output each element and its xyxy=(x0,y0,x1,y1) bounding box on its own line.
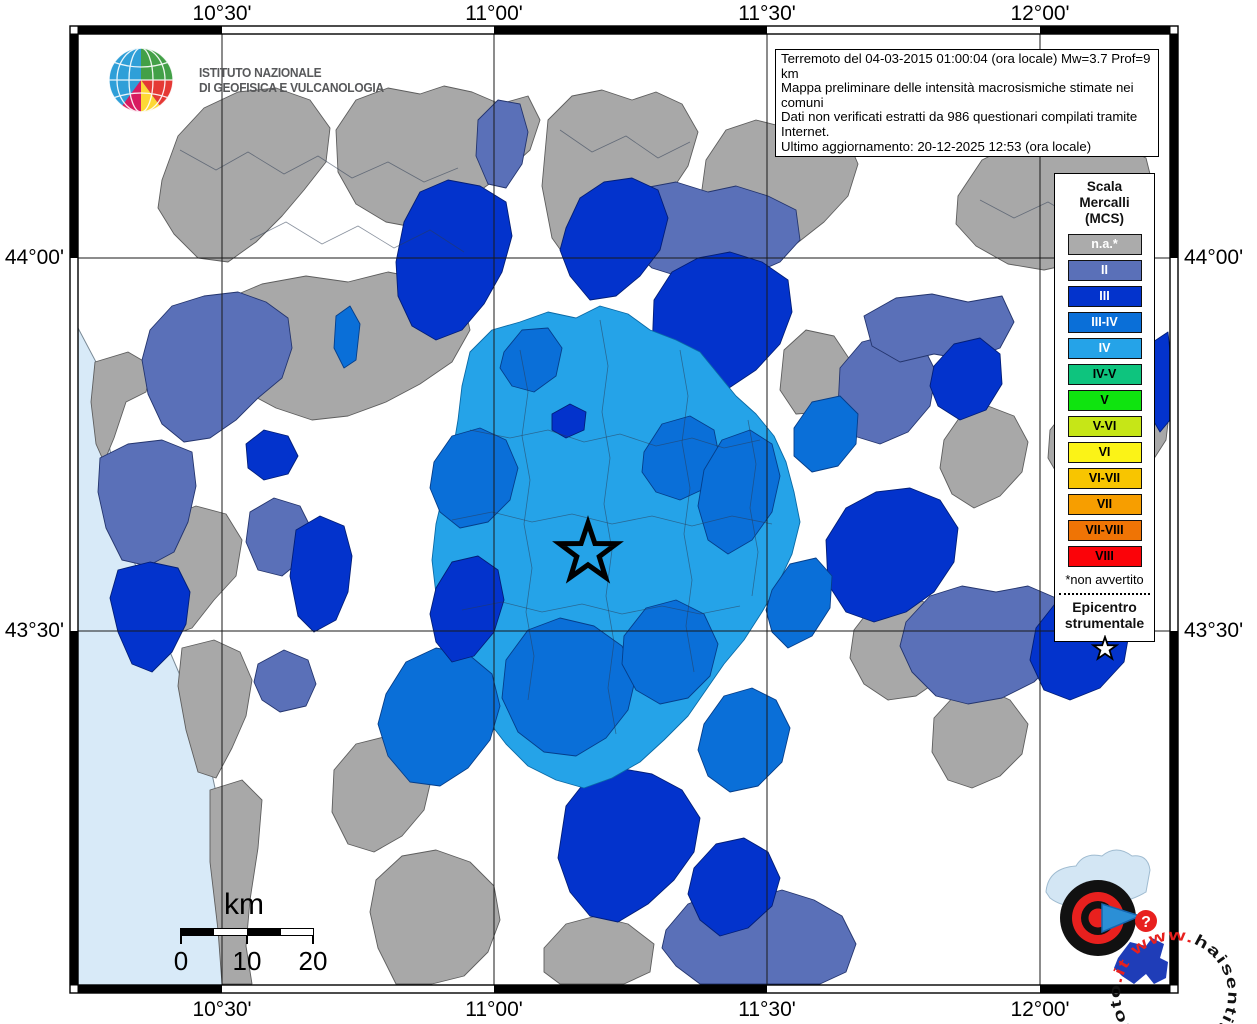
legend-chip-IV-V: IV-V xyxy=(1068,364,1142,385)
axis-tick-label: 11°30' xyxy=(738,2,796,26)
frame-segment xyxy=(70,985,222,993)
axis-tick-label: 12°00' xyxy=(1010,998,1069,1022)
frame-segment xyxy=(494,26,767,34)
frame-corner xyxy=(70,985,78,993)
intensity-legend: Scala Mercalli (MCS) n.a.*IIIIIIII-IVIVI… xyxy=(1054,173,1155,642)
legend-chip-VI-VII: VI-VII xyxy=(1068,468,1142,489)
ingv-line2: DI GEOFISICA E VULCANOLOGIA xyxy=(199,80,384,95)
scale-segment xyxy=(280,928,314,936)
axis-tick-label: 11°00' xyxy=(465,2,523,26)
municipality-polygon-s xyxy=(142,292,292,442)
frame-corner xyxy=(70,26,78,34)
legend-chip-V: V xyxy=(1068,390,1142,411)
frame-segment xyxy=(1040,26,1178,34)
scale-unit-label: km xyxy=(224,888,264,922)
municipality-polygon-g xyxy=(932,688,1028,788)
axis-tick-label: 44°00' xyxy=(0,246,64,270)
axis-tick-label: 43°30' xyxy=(1184,619,1243,643)
legend-chip-VII: VII xyxy=(1068,494,1142,515)
frame-segment xyxy=(767,26,1040,34)
event-subtitle-line: Mappa preliminare delle intensità macros… xyxy=(781,81,1153,110)
frame-segment xyxy=(1170,258,1178,631)
frame-segment xyxy=(70,258,78,631)
legend-chip-V-VI: V-VI xyxy=(1068,416,1142,437)
frame-segment xyxy=(1170,26,1178,258)
legend-chip-n.a.*: n.a.* xyxy=(1068,234,1142,255)
ingv-logo: ISTITUTO NAZIONALE DI GEOFISICA E VULCAN… xyxy=(97,46,400,114)
axis-tick-label: 10°30' xyxy=(192,2,251,26)
municipality-polygon-g xyxy=(370,850,500,984)
legend-chip-VII-VIII: VII-VIII xyxy=(1068,520,1142,541)
municipality-polygon-d xyxy=(290,516,352,632)
legend-divider xyxy=(1059,593,1150,595)
municipality-polygon-g xyxy=(544,916,654,984)
scale-tick xyxy=(246,936,248,944)
municipality-polygon-m xyxy=(698,688,790,792)
legend-footnote: *non avvertito xyxy=(1055,572,1154,587)
haisentito-logo: ? www.haisentitoilterremoto.it xyxy=(1046,850,1241,1024)
scale-tick xyxy=(180,936,182,944)
scale-segment xyxy=(180,928,214,936)
legend-epicenter-star-icon xyxy=(1055,635,1154,668)
municipality-polygon-d xyxy=(246,430,298,480)
scale-segment xyxy=(247,928,281,936)
legend-chip-VI: VI xyxy=(1068,442,1142,463)
legend-chip-III: III xyxy=(1068,286,1142,307)
event-data-line: Dati non verificati estratti da 986 ques… xyxy=(781,110,1153,139)
frame-segment xyxy=(767,985,1040,993)
municipality-polygon-s xyxy=(254,650,316,712)
axis-tick-label: 43°30' xyxy=(0,619,64,643)
ingv-wordmark: ISTITUTO NAZIONALE DI GEOFISICA E VULCAN… xyxy=(199,65,384,95)
axis-tick-label: 11°30' xyxy=(738,998,796,1022)
frame-corner xyxy=(1170,26,1178,34)
question-mark-icon: ? xyxy=(1141,914,1151,931)
municipality-polygon-g xyxy=(940,406,1028,508)
frame-segment xyxy=(222,26,494,34)
ingv-globe-icon xyxy=(97,46,185,114)
frame-segment xyxy=(70,26,78,258)
axis-tick-label: 44°00' xyxy=(1184,246,1243,270)
frame-segment xyxy=(494,985,767,993)
legend-items: n.a.*IIIIIIII-IVIVIV-VVV-VIVIVI-VIIVIIVI… xyxy=(1055,234,1154,567)
ingv-line1: ISTITUTO NAZIONALE xyxy=(199,65,384,80)
event-title-line: Terremoto del 04-03-2015 01:00:04 (ora l… xyxy=(781,52,1153,81)
event-updated-line: Ultimo aggiornamento: 20-12-2025 12:53 (… xyxy=(781,140,1153,155)
axis-tick-label: 11°00' xyxy=(465,998,523,1022)
legend-chip-VIII: VIII xyxy=(1068,546,1142,567)
scale-segment xyxy=(213,928,248,936)
legend-chip-III-IV: III-IV xyxy=(1068,312,1142,333)
legend-chip-II: II xyxy=(1068,260,1142,281)
frame-segment xyxy=(70,631,78,993)
municipality-polygon-m xyxy=(378,648,500,786)
municipality-polygon-g xyxy=(158,88,330,262)
frame-segment xyxy=(70,26,222,34)
legend-epicenter-label: Epicentro strumentale xyxy=(1055,599,1154,631)
municipality-polygon-d xyxy=(558,768,700,922)
municipality-regions-layer xyxy=(91,86,1170,984)
axis-tick-label: 10°30' xyxy=(192,998,251,1022)
municipality-polygon-d xyxy=(396,180,512,340)
scale-tick xyxy=(312,936,314,944)
frame-segment xyxy=(222,985,494,993)
legend-title: Scala Mercalli (MCS) xyxy=(1055,179,1154,227)
frame-corner xyxy=(1170,985,1178,993)
map-page: ? www.haisentitoilterremoto.it xyxy=(0,0,1257,1024)
scale-tick-label: 0 xyxy=(174,946,188,977)
scale-tick-label: 10 xyxy=(233,946,262,977)
scale-tick-label: 20 xyxy=(299,946,328,977)
axis-tick-label: 12°00' xyxy=(1010,2,1069,26)
event-info-box: Terremoto del 04-03-2015 01:00:04 (ora l… xyxy=(775,49,1159,157)
legend-chip-IV: IV xyxy=(1068,338,1142,359)
